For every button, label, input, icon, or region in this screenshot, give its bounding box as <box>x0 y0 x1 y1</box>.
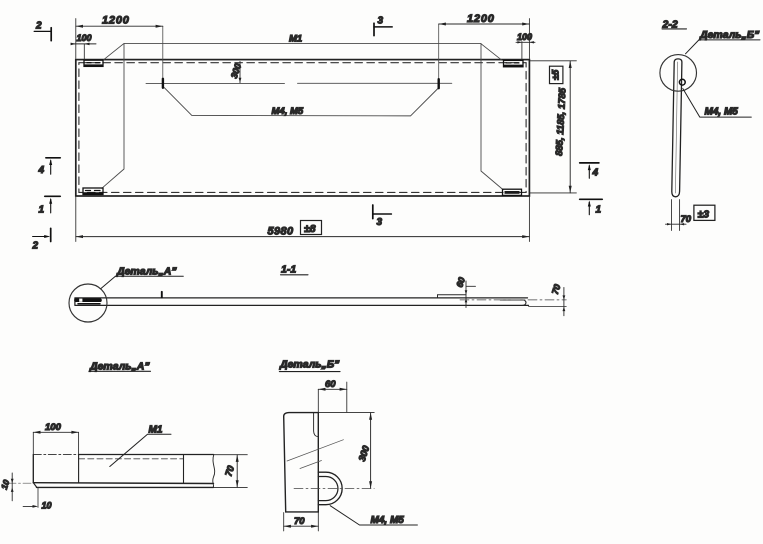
svg-text:М4, М5: М4, М5 <box>272 106 304 117</box>
svg-text:±3: ±3 <box>698 209 710 221</box>
svg-text:10: 10 <box>42 501 52 511</box>
svg-text:3: 3 <box>377 217 383 228</box>
svg-text:4: 4 <box>38 165 45 176</box>
svg-text:±8: ±8 <box>304 223 316 235</box>
svg-text:70: 70 <box>681 214 692 225</box>
svg-text:3: 3 <box>378 16 384 27</box>
svg-text:2: 2 <box>35 21 42 32</box>
svg-text:1200: 1200 <box>102 15 130 27</box>
svg-text:70: 70 <box>223 464 237 478</box>
svg-text:Деталь„Б”: Деталь„Б” <box>279 359 340 371</box>
svg-text:Деталь„А”: Деталь„А” <box>89 361 150 373</box>
svg-text:1200: 1200 <box>467 13 495 25</box>
svg-text:±5: ±5 <box>551 69 562 80</box>
svg-text:100: 100 <box>45 422 62 433</box>
svg-text:М1: М1 <box>149 425 163 436</box>
svg-text:70: 70 <box>294 516 305 527</box>
svg-text:Деталь„А”: Деталь„А” <box>116 266 177 278</box>
svg-text:10: 10 <box>0 478 11 490</box>
svg-text:1-1: 1-1 <box>281 264 296 276</box>
svg-text:70: 70 <box>550 283 563 296</box>
svg-text:1: 1 <box>596 205 602 216</box>
svg-text:300: 300 <box>229 62 243 79</box>
svg-text:5980: 5980 <box>268 226 295 238</box>
svg-text:2: 2 <box>32 241 39 252</box>
svg-text:100: 100 <box>517 32 532 42</box>
svg-text:60: 60 <box>454 276 467 289</box>
svg-text:Деталь„Б”: Деталь„Б” <box>699 29 760 41</box>
svg-text:М4, М5: М4, М5 <box>705 107 739 118</box>
svg-text:885, 1185, 1785: 885, 1185, 1785 <box>554 87 569 156</box>
svg-text:60: 60 <box>325 379 336 390</box>
svg-text:100: 100 <box>77 33 92 43</box>
svg-text:М1: М1 <box>289 34 302 45</box>
svg-text:М4, М5: М4, М5 <box>371 515 405 526</box>
svg-text:1: 1 <box>39 205 45 216</box>
svg-text:4: 4 <box>592 168 599 179</box>
